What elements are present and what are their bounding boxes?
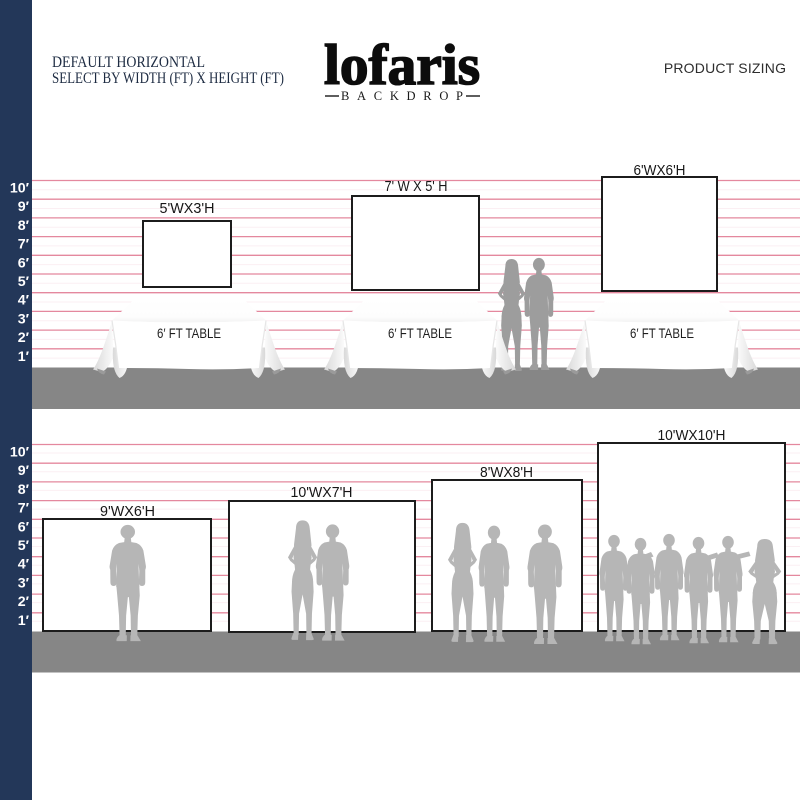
- svg-text:5′: 5′: [18, 274, 30, 290]
- svg-text:4′: 4′: [18, 557, 30, 573]
- svg-text:lofaris: lofaris: [324, 34, 480, 97]
- svg-text:10′: 10′: [10, 181, 30, 197]
- svg-text:6′: 6′: [18, 519, 30, 535]
- svg-text:8′: 8′: [18, 218, 30, 234]
- svg-text:5'WX3'H: 5'WX3'H: [160, 201, 215, 217]
- svg-text:4′: 4′: [18, 293, 30, 309]
- svg-text:1′: 1′: [18, 613, 30, 629]
- svg-text:10′: 10′: [10, 445, 30, 461]
- svg-text:1′: 1′: [18, 349, 30, 365]
- svg-text:PRODUCT SIZING: PRODUCT SIZING: [664, 60, 786, 76]
- svg-text:2′: 2′: [18, 330, 30, 346]
- svg-text:8'WX8'H: 8'WX8'H: [480, 465, 533, 481]
- svg-text:7′: 7′: [18, 237, 30, 253]
- svg-text:3′: 3′: [18, 575, 30, 591]
- svg-text:10'WX10'H: 10'WX10'H: [658, 428, 726, 444]
- svg-text:DEFAULT HORIZONTAL: DEFAULT HORIZONTAL: [52, 54, 205, 71]
- svg-text:SELECT BY WIDTH (FT) X HEIGHT: SELECT BY WIDTH (FT) X HEIGHT (FT): [52, 70, 284, 87]
- svg-text:9′: 9′: [18, 199, 30, 215]
- svg-text:8′: 8′: [18, 482, 30, 498]
- svg-text:7′: 7′: [18, 501, 30, 517]
- svg-text:5′: 5′: [18, 538, 30, 554]
- svg-text:3′: 3′: [18, 311, 30, 327]
- svg-text:10'WX7'H: 10'WX7'H: [291, 485, 353, 501]
- svg-text:2′: 2′: [18, 594, 30, 610]
- svg-text:9'WX6'H: 9'WX6'H: [100, 504, 155, 520]
- svg-text:7' W X 5' H: 7' W X 5' H: [385, 179, 448, 195]
- svg-text:9′: 9′: [18, 463, 30, 479]
- svg-text:6′: 6′: [18, 255, 30, 271]
